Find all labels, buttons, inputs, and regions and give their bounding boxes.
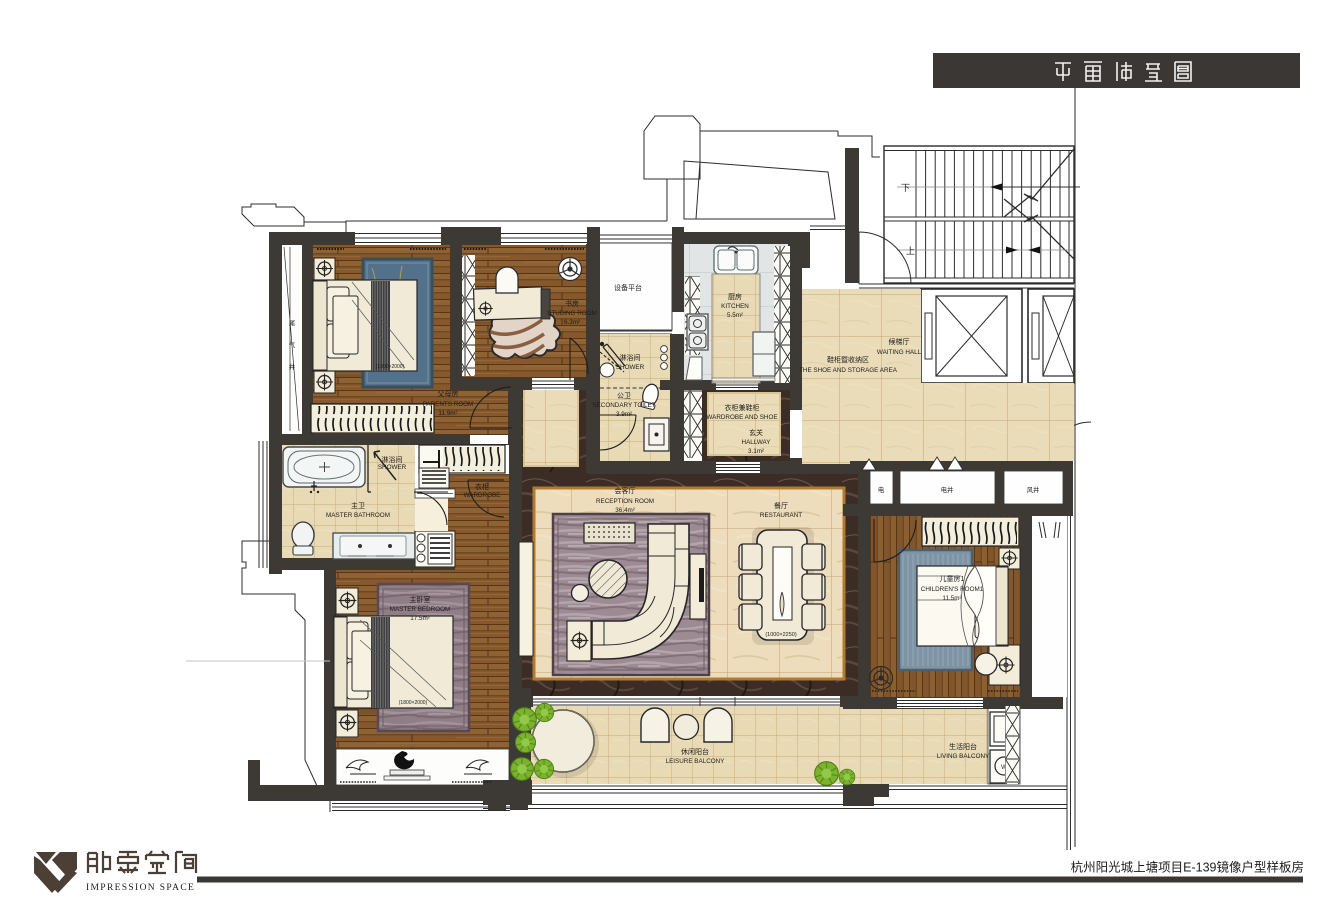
svg-text:设备平台: 设备平台 bbox=[614, 283, 642, 292]
svg-text:电: 电 bbox=[878, 485, 885, 494]
svg-text:SHOWER: SHOWER bbox=[616, 364, 645, 371]
svg-text:井: 井 bbox=[289, 362, 295, 371]
svg-text:MASTER BEDROOM: MASTER BEDROOM bbox=[390, 606, 451, 613]
svg-text:LIVING BALCONY: LIVING BALCONY bbox=[937, 753, 990, 760]
svg-text:气: 气 bbox=[289, 340, 296, 349]
svg-text:CHILDREN'S ROOM1: CHILDREN'S ROOM1 bbox=[921, 586, 984, 593]
svg-text:6.3m²: 6.3m² bbox=[564, 319, 580, 326]
svg-text:鞋柜暨收纳区: 鞋柜暨收纳区 bbox=[827, 355, 869, 364]
svg-text:WARDROBE: WARDROBE bbox=[464, 492, 501, 499]
svg-text:RESTAURANT: RESTAURANT bbox=[760, 512, 802, 519]
svg-text:厨房: 厨房 bbox=[728, 292, 742, 301]
svg-text:17.5m²: 17.5m² bbox=[410, 615, 430, 622]
svg-text:上: 上 bbox=[906, 246, 915, 256]
svg-text:风井: 风井 bbox=[1027, 485, 1040, 494]
svg-text:STUDING ROOM: STUDING ROOM bbox=[547, 310, 597, 317]
svg-text:3.9m²: 3.9m² bbox=[616, 411, 632, 418]
svg-text:尾: 尾 bbox=[289, 319, 295, 327]
svg-text:MASTER BATHROOM: MASTER BATHROOM bbox=[326, 512, 390, 519]
svg-text:会客厅: 会客厅 bbox=[615, 486, 636, 495]
svg-text:3.1m²: 3.1m² bbox=[748, 448, 764, 455]
svg-text:儿童房1: 儿童房1 bbox=[940, 574, 965, 583]
svg-text:PARENTS ROOM: PARENTS ROOM bbox=[423, 401, 474, 408]
svg-text:餐厅: 餐厅 bbox=[774, 501, 788, 510]
svg-text:休闲阳台: 休闲阳台 bbox=[681, 747, 709, 756]
svg-text:THE SHOE AND STORAGE AREA: THE SHOE AND STORAGE AREA bbox=[799, 367, 898, 374]
svg-text:杭州阳光城上塘项目E-139镜像户型样板房: 杭州阳光城上塘项目E-139镜像户型样板房 bbox=[1071, 860, 1304, 875]
svg-text:LEISURE BALCONY: LEISURE BALCONY bbox=[666, 758, 726, 765]
svg-text:SHOWER: SHOWER bbox=[378, 464, 407, 471]
svg-text:11.5m²: 11.5m² bbox=[942, 595, 961, 602]
svg-text:生活阳台: 生活阳台 bbox=[949, 742, 977, 751]
svg-text:(1000×2250): (1000×2250) bbox=[765, 632, 797, 638]
svg-text:衣柜: 衣柜 bbox=[475, 482, 489, 491]
svg-text:下: 下 bbox=[901, 183, 910, 193]
svg-text:主卧室: 主卧室 bbox=[410, 595, 431, 604]
svg-text:(1800×2000): (1800×2000) bbox=[376, 364, 405, 370]
svg-text:玄关: 玄关 bbox=[749, 428, 763, 437]
svg-text:书房: 书房 bbox=[565, 299, 579, 308]
svg-text:淋浴间: 淋浴间 bbox=[620, 353, 641, 362]
svg-text:WAITING HALL: WAITING HALL bbox=[877, 349, 922, 356]
svg-text:IMPRESSION SPACE: IMPRESSION SPACE bbox=[86, 883, 195, 893]
svg-text:(1800×2000): (1800×2000) bbox=[399, 700, 428, 706]
svg-text:电井: 电井 bbox=[941, 485, 954, 494]
svg-text:父母房: 父母房 bbox=[438, 389, 459, 398]
svg-text:RECEPTION ROOM: RECEPTION ROOM bbox=[596, 498, 654, 505]
svg-text:36.4m²: 36.4m² bbox=[615, 507, 635, 514]
svg-text:SECONDARY TOILET: SECONDARY TOILET bbox=[592, 402, 655, 409]
svg-text:公卫: 公卫 bbox=[617, 392, 631, 400]
svg-text:5.5m²: 5.5m² bbox=[727, 312, 743, 319]
svg-text:候梯厅: 候梯厅 bbox=[889, 337, 910, 346]
svg-text:WARDROBE AND SHOE: WARDROBE AND SHOE bbox=[706, 414, 777, 421]
svg-text:淋浴间: 淋浴间 bbox=[382, 455, 403, 464]
svg-text:衣柜兼鞋柜: 衣柜兼鞋柜 bbox=[725, 403, 760, 412]
svg-text:HALLWAY: HALLWAY bbox=[742, 439, 772, 446]
svg-text:KITCHEN: KITCHEN bbox=[721, 303, 749, 310]
svg-text:主卫: 主卫 bbox=[351, 501, 365, 510]
svg-text:11.9m²: 11.9m² bbox=[438, 410, 457, 417]
